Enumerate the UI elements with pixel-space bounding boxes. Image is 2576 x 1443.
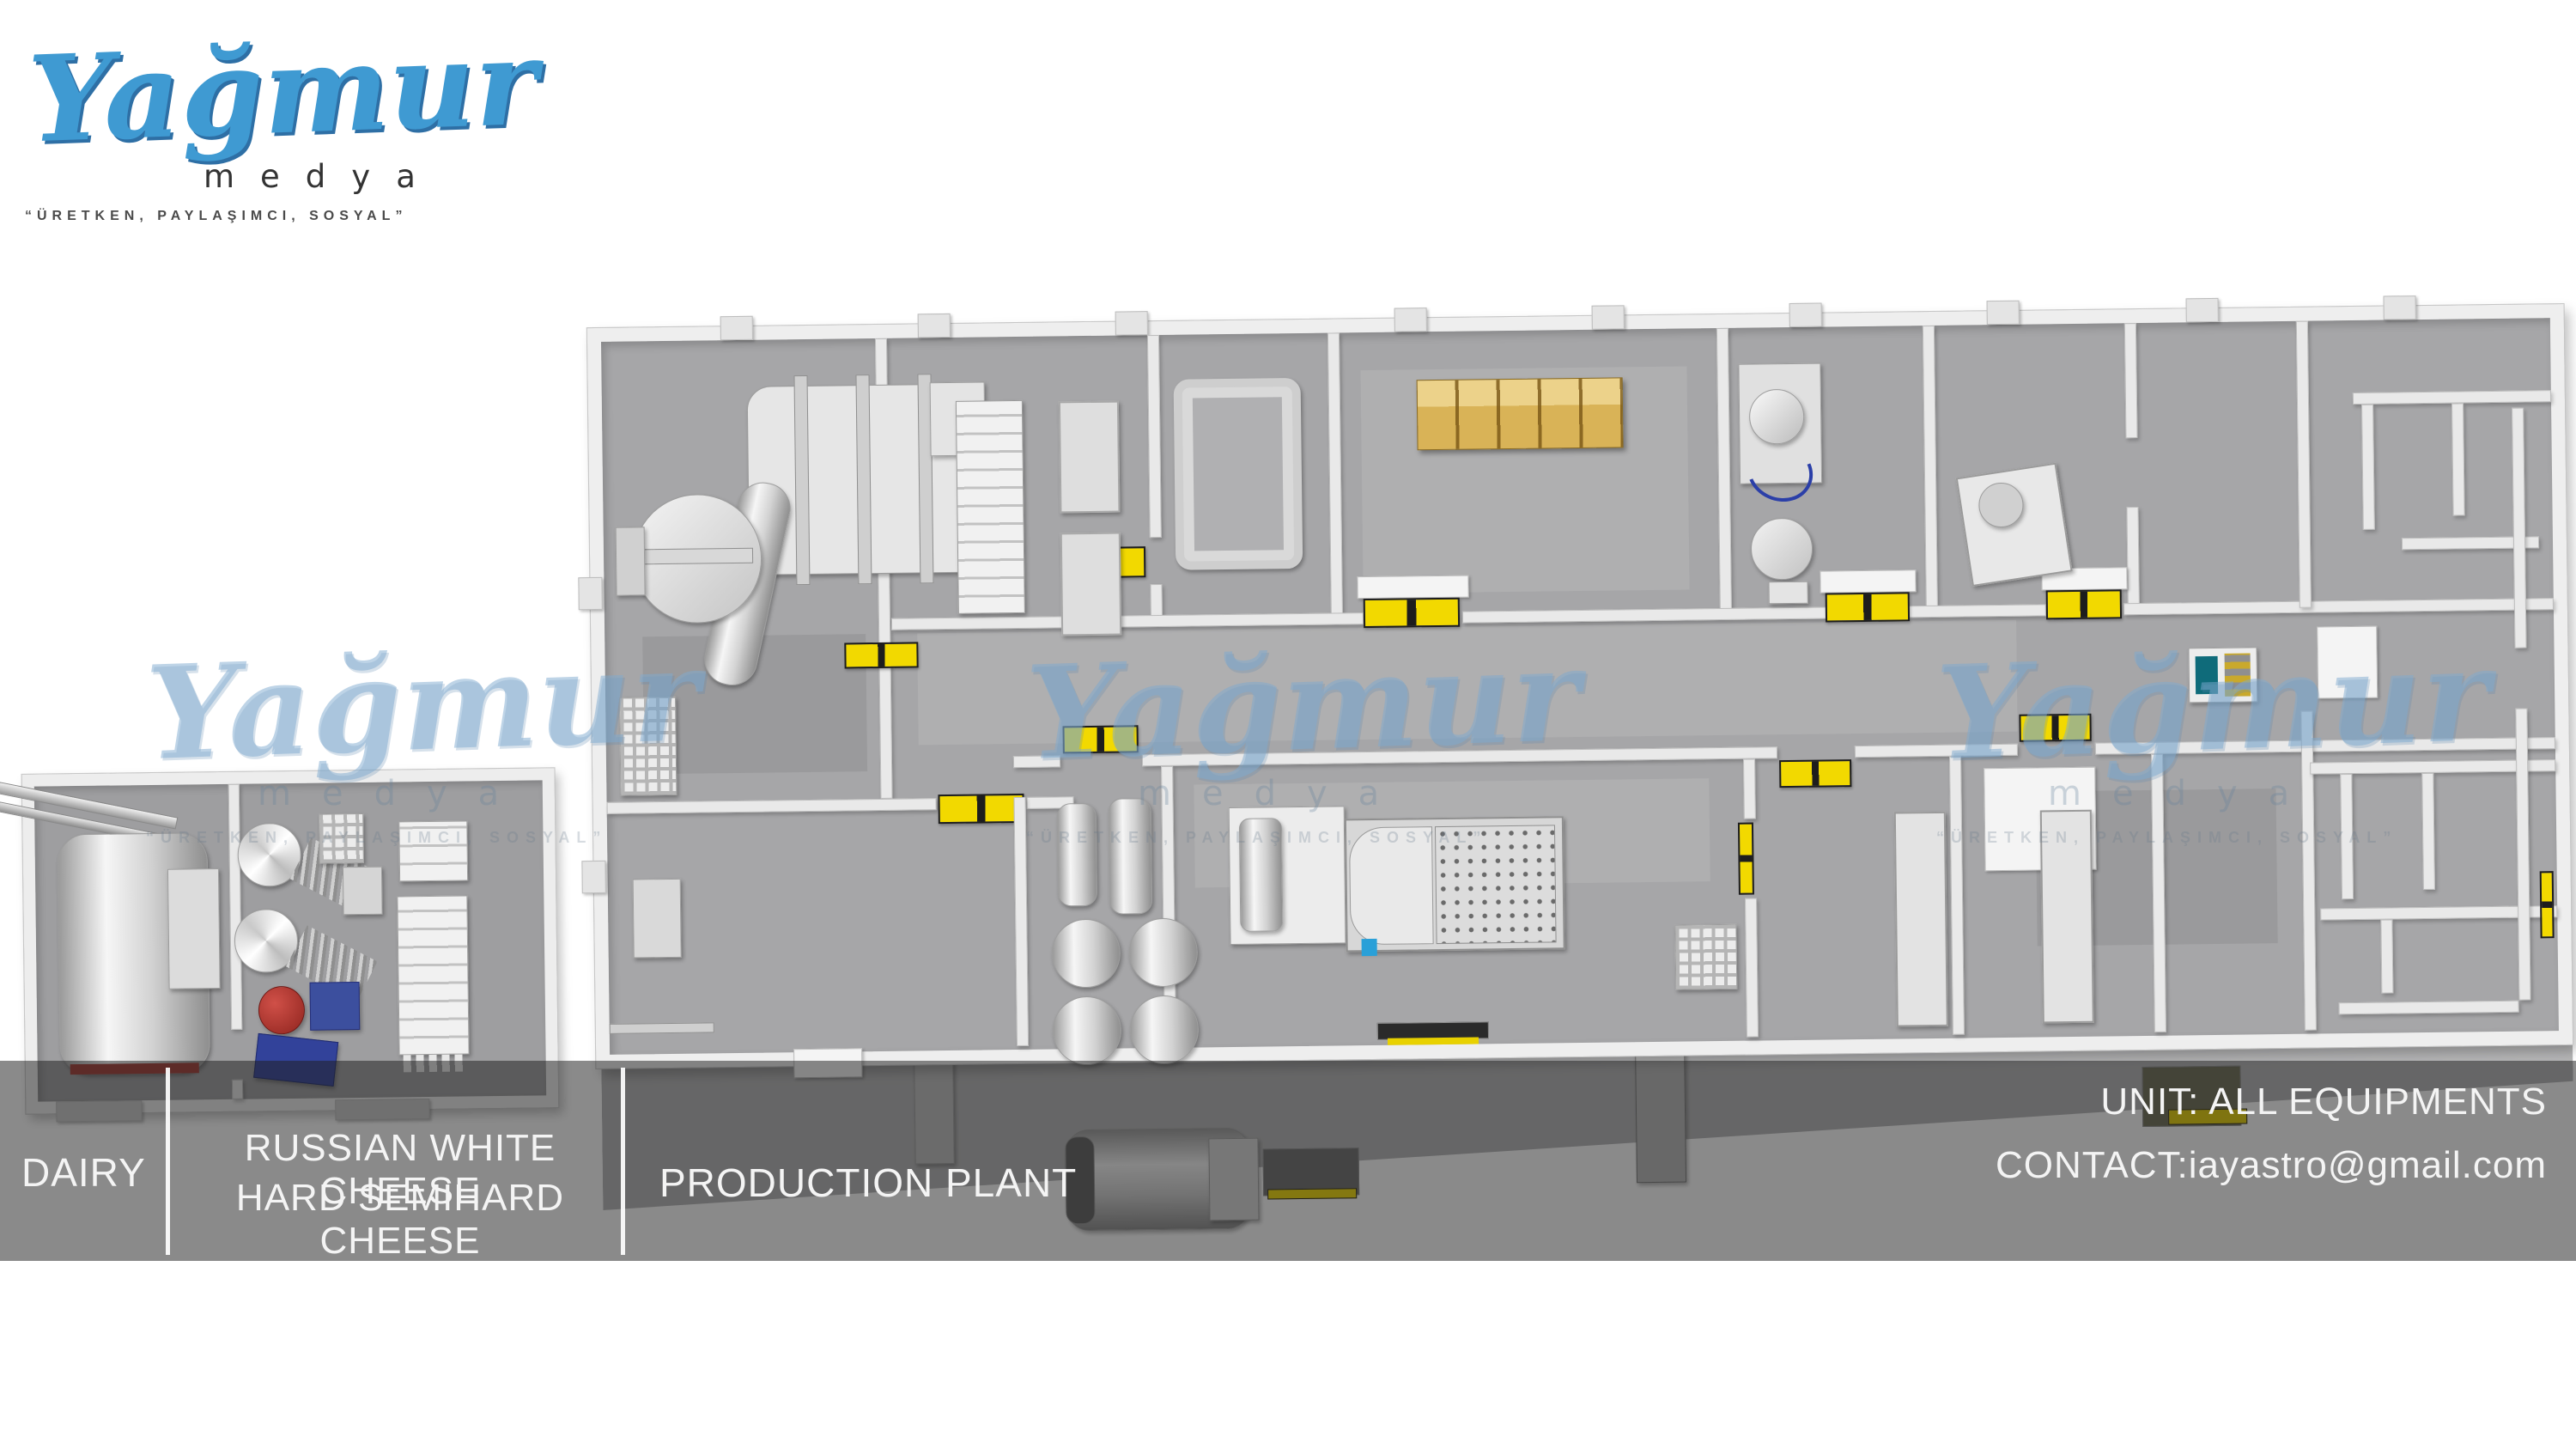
hazard-door-marker bbox=[1062, 725, 1138, 753]
interior-wall bbox=[1743, 759, 1756, 819]
hazard-door-marker bbox=[938, 794, 1024, 824]
rack-machine bbox=[1059, 401, 1121, 514]
brand-logo-script: Yağmur bbox=[27, 23, 539, 160]
cheese-vat-bridge bbox=[793, 375, 810, 585]
footer-label-cheese-line2: HARD SEMIHARD CHEESE bbox=[180, 1177, 620, 1263]
footer-label-production: PRODUCTION PLANT bbox=[659, 1160, 1077, 1206]
interior-wall bbox=[1147, 335, 1162, 538]
wall-pilaster bbox=[578, 577, 602, 610]
pallet-truck-forks bbox=[2225, 653, 2251, 696]
brand-logo-sub: medya bbox=[204, 161, 441, 192]
wall-pilaster bbox=[1115, 311, 1148, 335]
press-head bbox=[1349, 826, 1434, 945]
cip-pump-cluster bbox=[633, 879, 682, 959]
maze-partition bbox=[2451, 403, 2465, 515]
hazard-door-marker bbox=[1826, 592, 1910, 622]
crate-stack bbox=[1674, 924, 1737, 990]
moulding-machine bbox=[1956, 463, 2073, 587]
hazard-door-marker bbox=[1738, 823, 1754, 895]
footer-label-unit: UNIT: ALL EQUIPMENTS bbox=[2100, 1081, 2547, 1123]
maze-partition bbox=[2339, 1001, 2519, 1015]
swing-door-panel bbox=[2317, 626, 2378, 699]
pallet-stack bbox=[397, 895, 469, 1055]
door-threshold bbox=[1357, 575, 1468, 600]
interior-wall bbox=[1745, 898, 1759, 1038]
hazard-door-marker bbox=[2046, 589, 2122, 619]
brand-logo-tagline: “ÜRETKEN, PAYLAŞIMCI, SOSYAL” bbox=[25, 209, 407, 224]
draining-conveyor bbox=[956, 400, 1025, 614]
brine-pool-inner bbox=[1193, 397, 1284, 551]
wall-pilaster bbox=[720, 316, 753, 340]
interior-wall bbox=[1150, 584, 1162, 618]
hazard-door-marker bbox=[1364, 598, 1460, 628]
valve-manifold bbox=[319, 813, 364, 864]
vat-platform bbox=[616, 527, 646, 595]
blue-crate bbox=[310, 982, 361, 1031]
footer-label-contact: CONTACT:iayastro@gmail.com bbox=[1996, 1144, 2547, 1187]
maze-partition bbox=[2353, 390, 2551, 405]
mat-hazard-stripe bbox=[1388, 1037, 1479, 1044]
interior-wall bbox=[2124, 323, 2138, 438]
wall-pilaster bbox=[918, 314, 951, 338]
maze-partition bbox=[2340, 774, 2354, 899]
drainage-machine-tank bbox=[1239, 818, 1284, 932]
press-accent bbox=[1362, 939, 1377, 956]
wall-pilaster bbox=[1987, 301, 2020, 325]
maze-partition bbox=[2421, 773, 2435, 890]
hazard-door-marker bbox=[2019, 714, 2091, 742]
brand-logo: Yağmur medya “ÜRETKEN, PAYLAŞIMCI, SOSYA… bbox=[21, 13, 485, 236]
hazard-door-marker bbox=[2540, 871, 2555, 938]
corridor-wall bbox=[1013, 755, 1060, 768]
cheese-vat-bridge bbox=[855, 374, 872, 584]
pump-block bbox=[1769, 581, 1808, 605]
tank-control-skid bbox=[167, 868, 221, 989]
wall-pilaster bbox=[1789, 303, 1822, 327]
press-perforated-plate bbox=[1435, 825, 1557, 944]
maze-partition bbox=[2380, 919, 2393, 993]
corridor-wall bbox=[1909, 604, 2046, 618]
process-tank bbox=[1109, 798, 1153, 915]
footer-divider bbox=[166, 1068, 170, 1255]
round-vat-bridge bbox=[641, 548, 753, 565]
floor-pipe-run bbox=[610, 1022, 714, 1033]
silver-skid bbox=[343, 867, 383, 916]
wall-pilaster bbox=[581, 861, 605, 893]
wall-pilaster bbox=[1592, 305, 1625, 329]
ripening-shelf-rack bbox=[1417, 377, 1624, 450]
hazard-door-marker bbox=[1779, 759, 1851, 788]
corridor-wall bbox=[1855, 744, 2018, 758]
wall-pilaster bbox=[2186, 298, 2219, 322]
maze-partition bbox=[2361, 405, 2375, 530]
packing-conveyor bbox=[2040, 810, 2094, 1024]
hazard-door-marker bbox=[844, 642, 918, 668]
door-threshold bbox=[1820, 569, 1916, 593]
footer-label-dairy: DAIRY bbox=[21, 1149, 146, 1196]
rack-trolley bbox=[619, 697, 677, 796]
process-tank bbox=[1057, 803, 1097, 907]
pallet-truck-screen bbox=[2196, 656, 2219, 694]
interior-wall bbox=[2126, 507, 2139, 606]
rack-machine bbox=[1060, 533, 1121, 636]
pallet-stack bbox=[398, 820, 468, 881]
wall-pilaster bbox=[1394, 307, 1427, 332]
filling-line-conveyor bbox=[1894, 812, 1948, 1027]
wall-pilaster bbox=[2383, 295, 2415, 320]
footer-divider bbox=[621, 1068, 625, 1255]
